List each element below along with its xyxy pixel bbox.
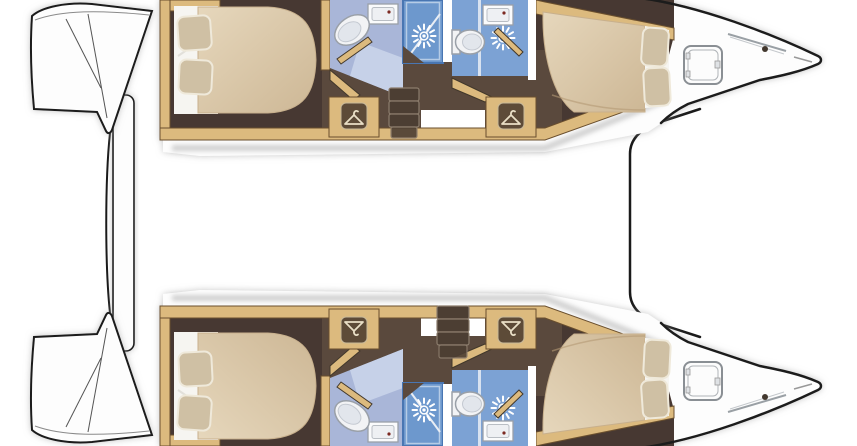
floorplan-svg	[0, 0, 857, 446]
aft-crossbeam-platform	[113, 95, 134, 351]
port-hull	[31, 0, 821, 156]
companionway-steps-port	[389, 88, 419, 138]
stern-connector	[106, 133, 110, 313]
floorplan-image	[0, 0, 857, 446]
bow-trampoline	[630, 109, 700, 337]
companionway-steps-starboard	[437, 306, 469, 358]
starboard-hull	[31, 290, 821, 446]
